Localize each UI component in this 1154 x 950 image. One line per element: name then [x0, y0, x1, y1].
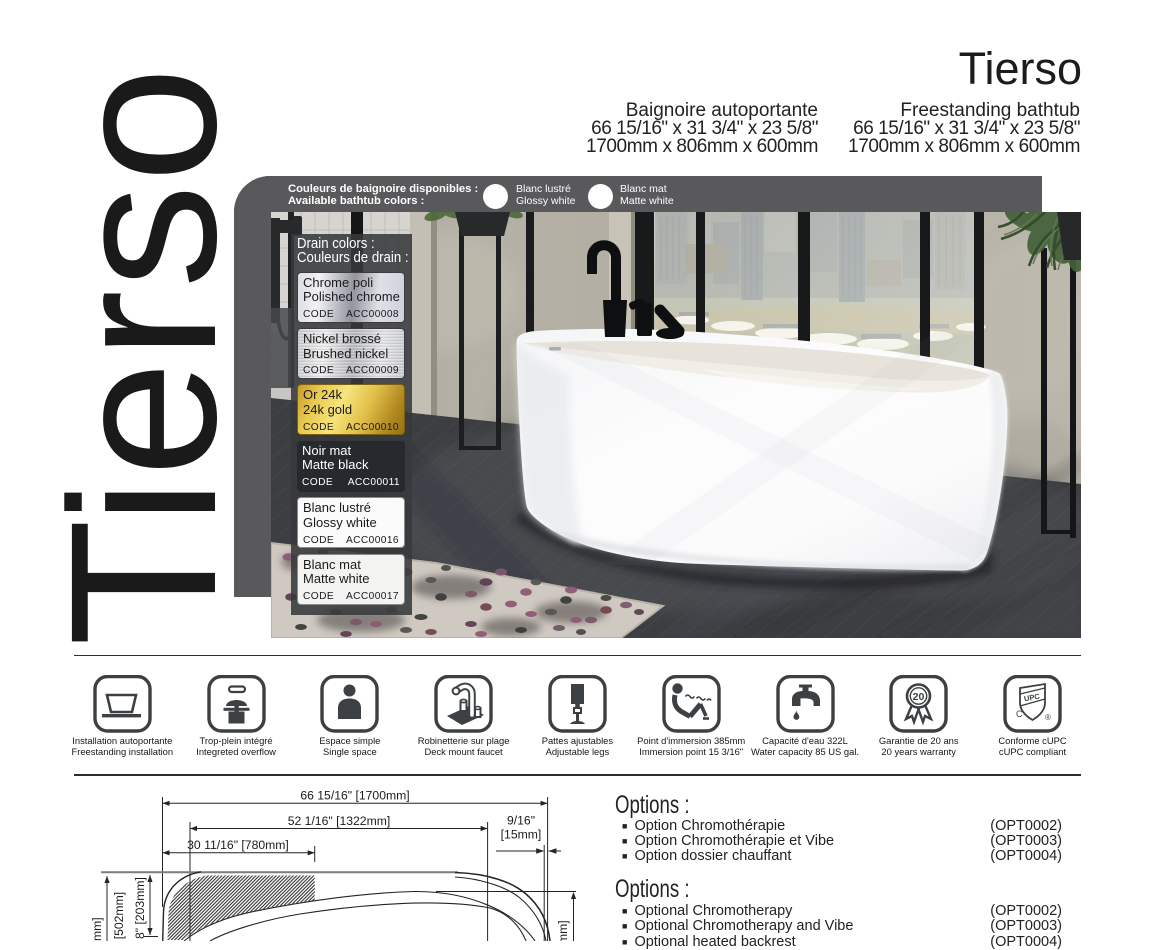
svg-text:" [502mm]: " [502mm]	[112, 892, 126, 941]
svg-text:8" [203mm]: 8" [203mm]	[133, 877, 147, 939]
svg-text:20: 20	[913, 691, 925, 703]
svg-text:®: ®	[1045, 713, 1051, 722]
svg-text:mm]: mm]	[556, 920, 570, 941]
svg-text:30 11/16" [780mm]: 30 11/16" [780mm]	[187, 838, 289, 852]
svg-text:C: C	[1016, 709, 1023, 719]
svg-text:[15mm]: [15mm]	[501, 828, 542, 842]
svg-text:9/16": 9/16"	[507, 814, 535, 828]
svg-text:52 1/16" [1322mm]: 52 1/16" [1322mm]	[288, 814, 391, 828]
svg-text:66 15/16" [1700mm]: 66 15/16" [1700mm]	[300, 789, 409, 803]
svg-text:mm]: mm]	[90, 917, 104, 941]
